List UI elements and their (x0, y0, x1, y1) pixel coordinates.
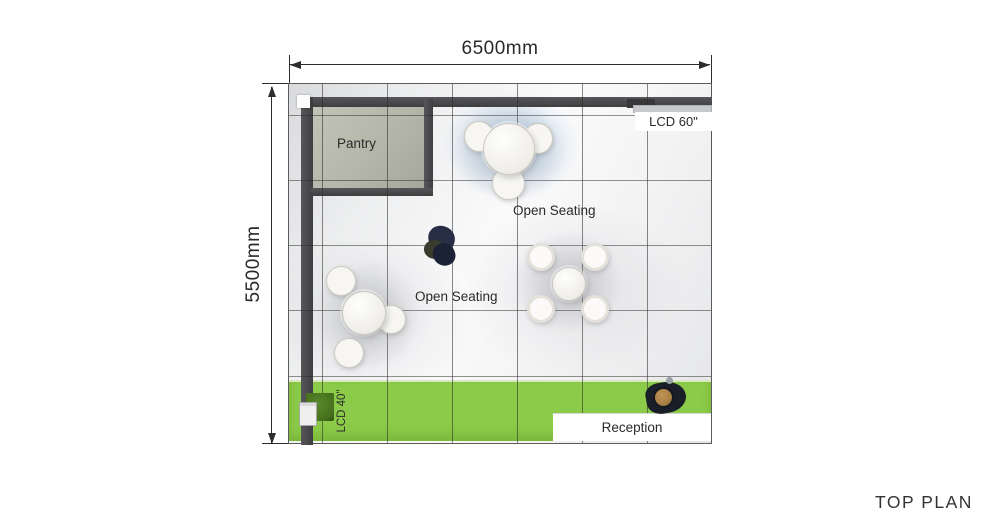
grid-line-h (289, 245, 711, 246)
dimension-width-line (290, 64, 710, 65)
dimension-width-arrow-right (699, 61, 710, 69)
lcd40-label: LCD 40" (336, 381, 350, 441)
chair (527, 295, 555, 323)
dimension-height-label: 5500mm (243, 204, 265, 324)
chair (326, 266, 356, 296)
extension-line-left-top (262, 83, 289, 84)
dimension-width-arrow-left (290, 61, 301, 69)
person-receptionist-shoulder (666, 377, 673, 384)
round-table (483, 123, 535, 175)
open-seating-label-top: Open Seating (513, 203, 596, 218)
dimension-height-line (271, 87, 272, 443)
round-table (342, 291, 386, 335)
grid-line-v (452, 84, 453, 443)
reception-desk: Reception (553, 413, 711, 441)
grid-line-v (322, 84, 323, 443)
open-seating-label-left: Open Seating (415, 289, 498, 304)
chair (581, 295, 609, 323)
top-plan-canvas: 6500mm 5500mm LCD 60" (0, 0, 1000, 527)
page-title: TOP PLAN (875, 492, 973, 513)
pantry-bottom-wall (311, 188, 433, 196)
reception-label: Reception (602, 420, 663, 435)
corner-post (297, 95, 310, 108)
grid-line-h (289, 376, 711, 377)
pantry-label: Pantry (337, 136, 376, 151)
round-table (552, 267, 586, 301)
lcd60-label: LCD 60" (635, 112, 712, 131)
dimension-height-arrow-up (268, 86, 276, 97)
pantry-right-wall (424, 99, 433, 196)
extension-line-left-bottom (262, 443, 289, 444)
chair (581, 243, 609, 271)
dimension-width-label: 6500mm (288, 38, 712, 60)
extension-line-top-left (289, 55, 290, 83)
lcd40-screen (299, 402, 317, 426)
person-receptionist-head (655, 389, 672, 406)
extension-line-top-right (711, 55, 712, 83)
chair (334, 338, 364, 368)
chair (527, 243, 555, 271)
